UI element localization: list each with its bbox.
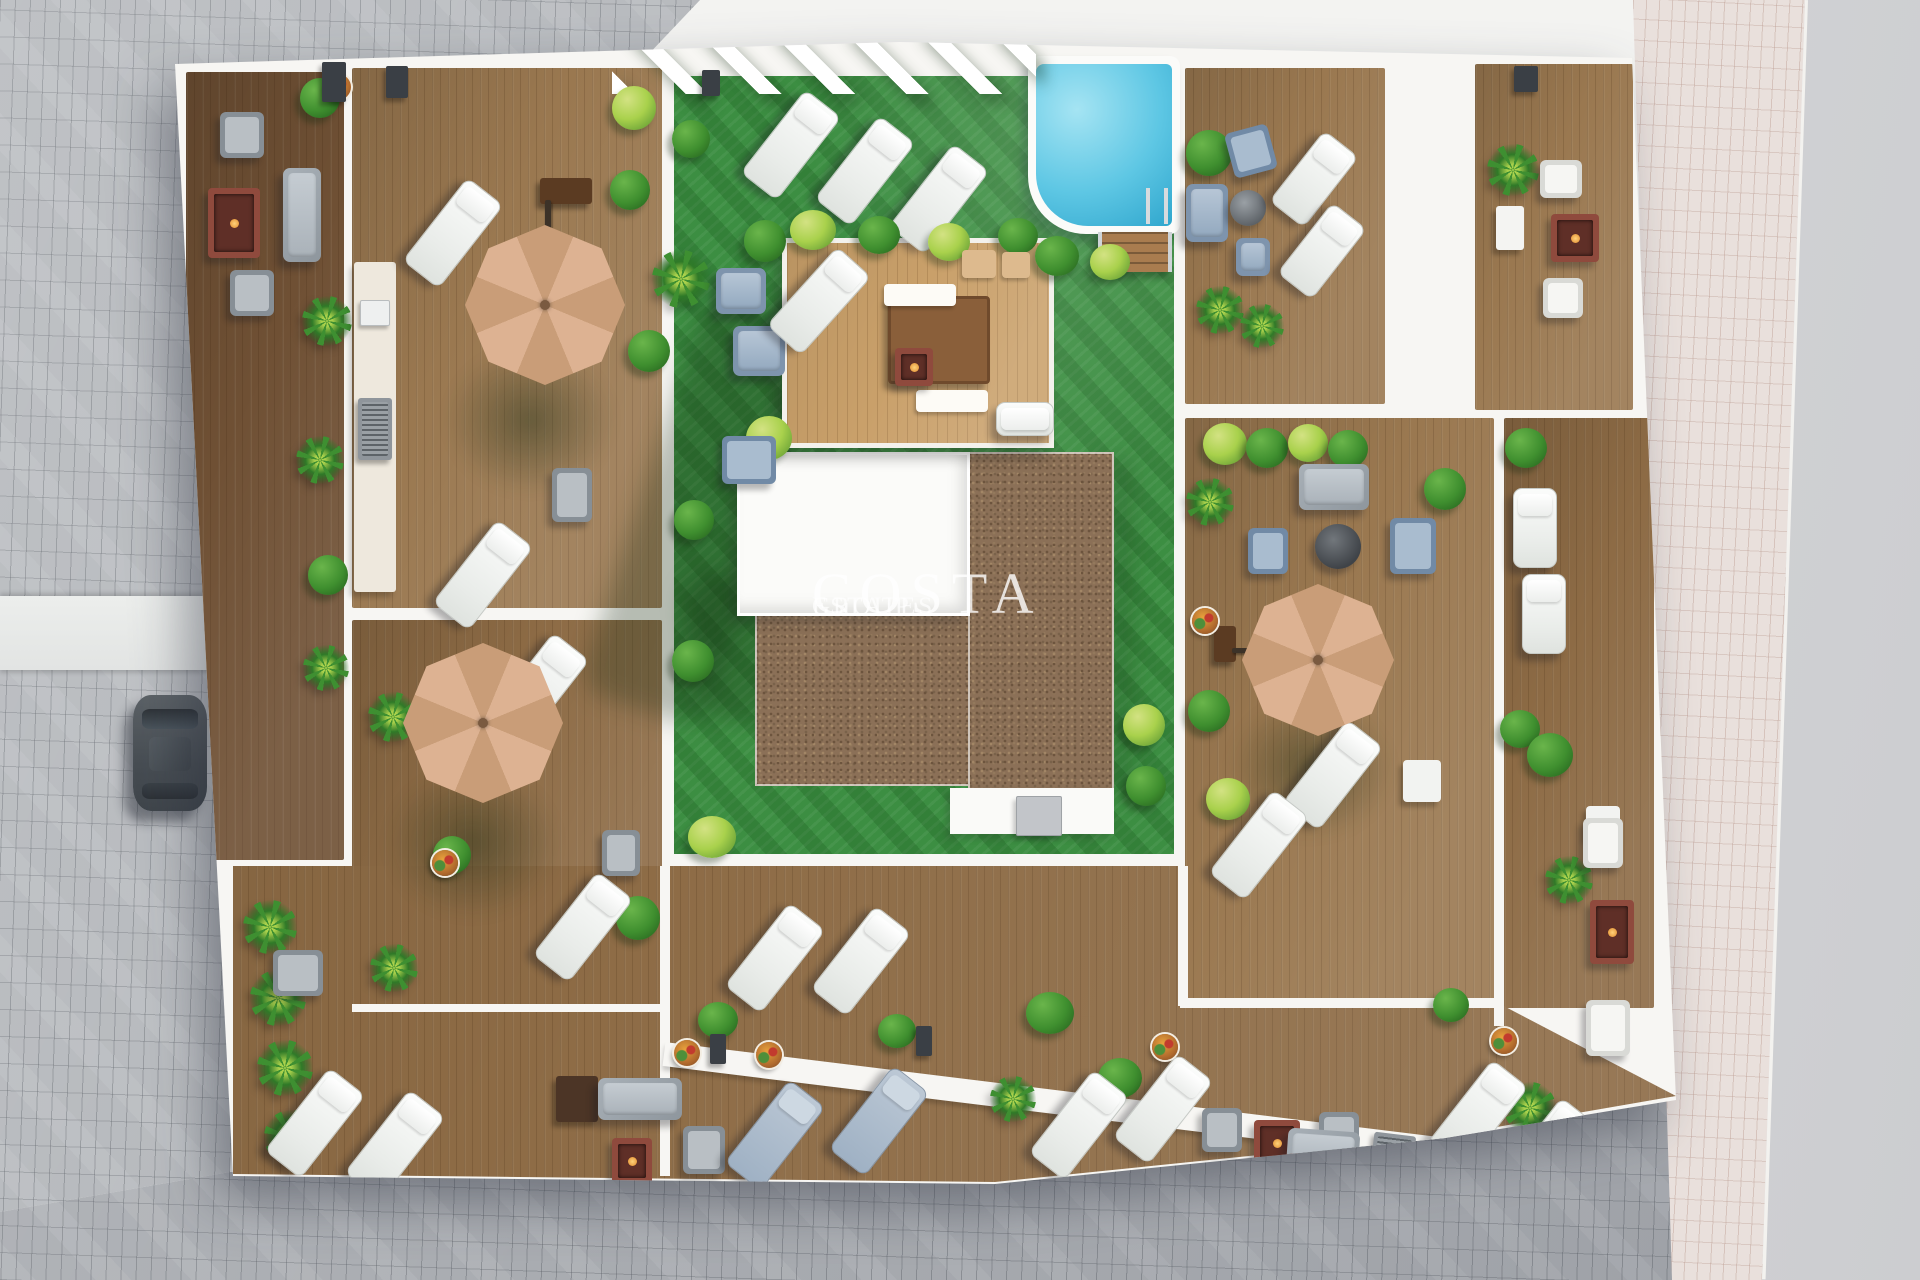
deck-post [710,1034,726,1064]
bush-plant [672,120,710,158]
palm-plant [302,296,352,346]
palm-plant [303,645,349,691]
armchair [552,468,592,522]
bush-plant [1288,424,1328,462]
fire-table [895,348,933,386]
bbq-grill-icon [1370,1132,1417,1177]
roof-hatch [322,62,346,102]
deck-post [916,1026,932,1056]
palm-plant [1186,478,1234,526]
bush-plant [998,218,1038,254]
railing [352,1004,662,1012]
bush-plant [1090,244,1130,280]
bush-plant [612,86,656,130]
armchair [1202,1108,1242,1152]
sofa [1286,1128,1361,1177]
bean-chair [716,268,766,314]
palm-plant [370,944,418,992]
armchair [273,950,323,996]
rooftop-building: COSTA GROUP ESTATES [0,0,1920,1280]
flower-pot [432,850,458,876]
bush-plant [878,1014,916,1048]
bush-plant [674,500,714,540]
roof-hatch [386,66,408,98]
armchair [1543,278,1583,318]
palm-plant [652,250,710,308]
topiary-plant [1424,468,1466,510]
palm-plant [1240,304,1284,348]
railing [1178,866,1188,1006]
bush-plant [672,640,714,682]
bush-plant [698,1002,738,1038]
bush-plant [1026,992,1074,1034]
outdoor-sink [360,300,390,326]
roof-hatch [702,70,720,96]
umbrella-parasol [465,225,625,385]
roof-hatch [1514,66,1538,92]
bush-plant [628,330,670,372]
bush-plant [744,220,786,262]
planter [556,1076,598,1122]
flower-pot [674,1040,700,1066]
armchair [602,830,640,876]
bush-plant [688,816,736,858]
planter [1496,206,1524,250]
bush-plant [790,210,836,250]
fire-table [1551,214,1599,262]
fire-table [612,1138,652,1184]
bush-plant [610,170,650,210]
umbrella-parasol [403,643,563,803]
building-shadow: COSTA GROUP ESTATES [0,0,1920,1280]
armchair [683,1126,725,1174]
railing [660,866,670,1176]
palm-plant [243,900,297,954]
palm-plant [257,1040,313,1096]
fire-table [1590,900,1634,964]
armchair [1586,1000,1630,1056]
sun-lounger [996,402,1054,436]
seat-cushion [962,250,996,278]
bbq-grill-icon [358,398,392,460]
umbrella-base [1214,626,1236,662]
bench-cushion [916,390,988,412]
armchair [1583,818,1623,868]
flower-pot [1152,1034,1178,1060]
gravel-roof [755,614,970,786]
palm-plant [1487,144,1539,196]
bench-cushion [884,284,956,306]
pergola-shade-slats [612,26,1036,94]
bush-plant [1126,766,1166,806]
bush-plant [1035,236,1079,276]
fire-pit-table [1315,524,1361,569]
bush-plant [1206,778,1250,820]
flower-pot [1192,608,1218,634]
aerial-render: COSTA GROUP ESTATES [0,0,1920,1280]
armchair [220,112,264,158]
armchair [230,270,274,316]
bush-plant [308,555,348,595]
lawn-shadow [1112,456,1130,796]
ac-unit [1016,796,1062,836]
bush-plant [1123,704,1165,746]
palm-plant [296,436,344,484]
sun-lounger [1522,574,1566,654]
umbrella-parasol [1242,584,1394,736]
sofa [1186,184,1228,242]
bean-chair [1236,238,1270,276]
bush-plant [1433,988,1469,1022]
armchair [722,436,776,484]
flower-pot [756,1042,782,1068]
bush-plant [1527,733,1573,777]
palm-plant [1196,286,1244,334]
bush-plant [1246,428,1288,468]
bush-plant [1328,430,1368,468]
bush-plant [1505,428,1547,468]
bush-plant [1188,690,1230,732]
round-table [1230,190,1266,226]
pool-ladder-icon [1146,188,1168,224]
sofa [1299,464,1369,510]
fire-table [208,188,260,258]
outdoor-sink [1430,1138,1464,1173]
sofa [598,1078,682,1120]
armchair [1390,518,1436,574]
sun-lounger [1513,488,1557,568]
armchair [1540,160,1582,198]
seat-cushion [1002,252,1030,278]
flower-pot [1491,1028,1517,1054]
watermark-estates: ESTATES [812,594,935,620]
sofa [283,168,321,262]
palm-plant [990,1076,1036,1122]
bush-plant [1203,423,1247,465]
bush-plant [858,216,900,254]
side-table [1403,760,1441,802]
armchair [1248,528,1288,574]
